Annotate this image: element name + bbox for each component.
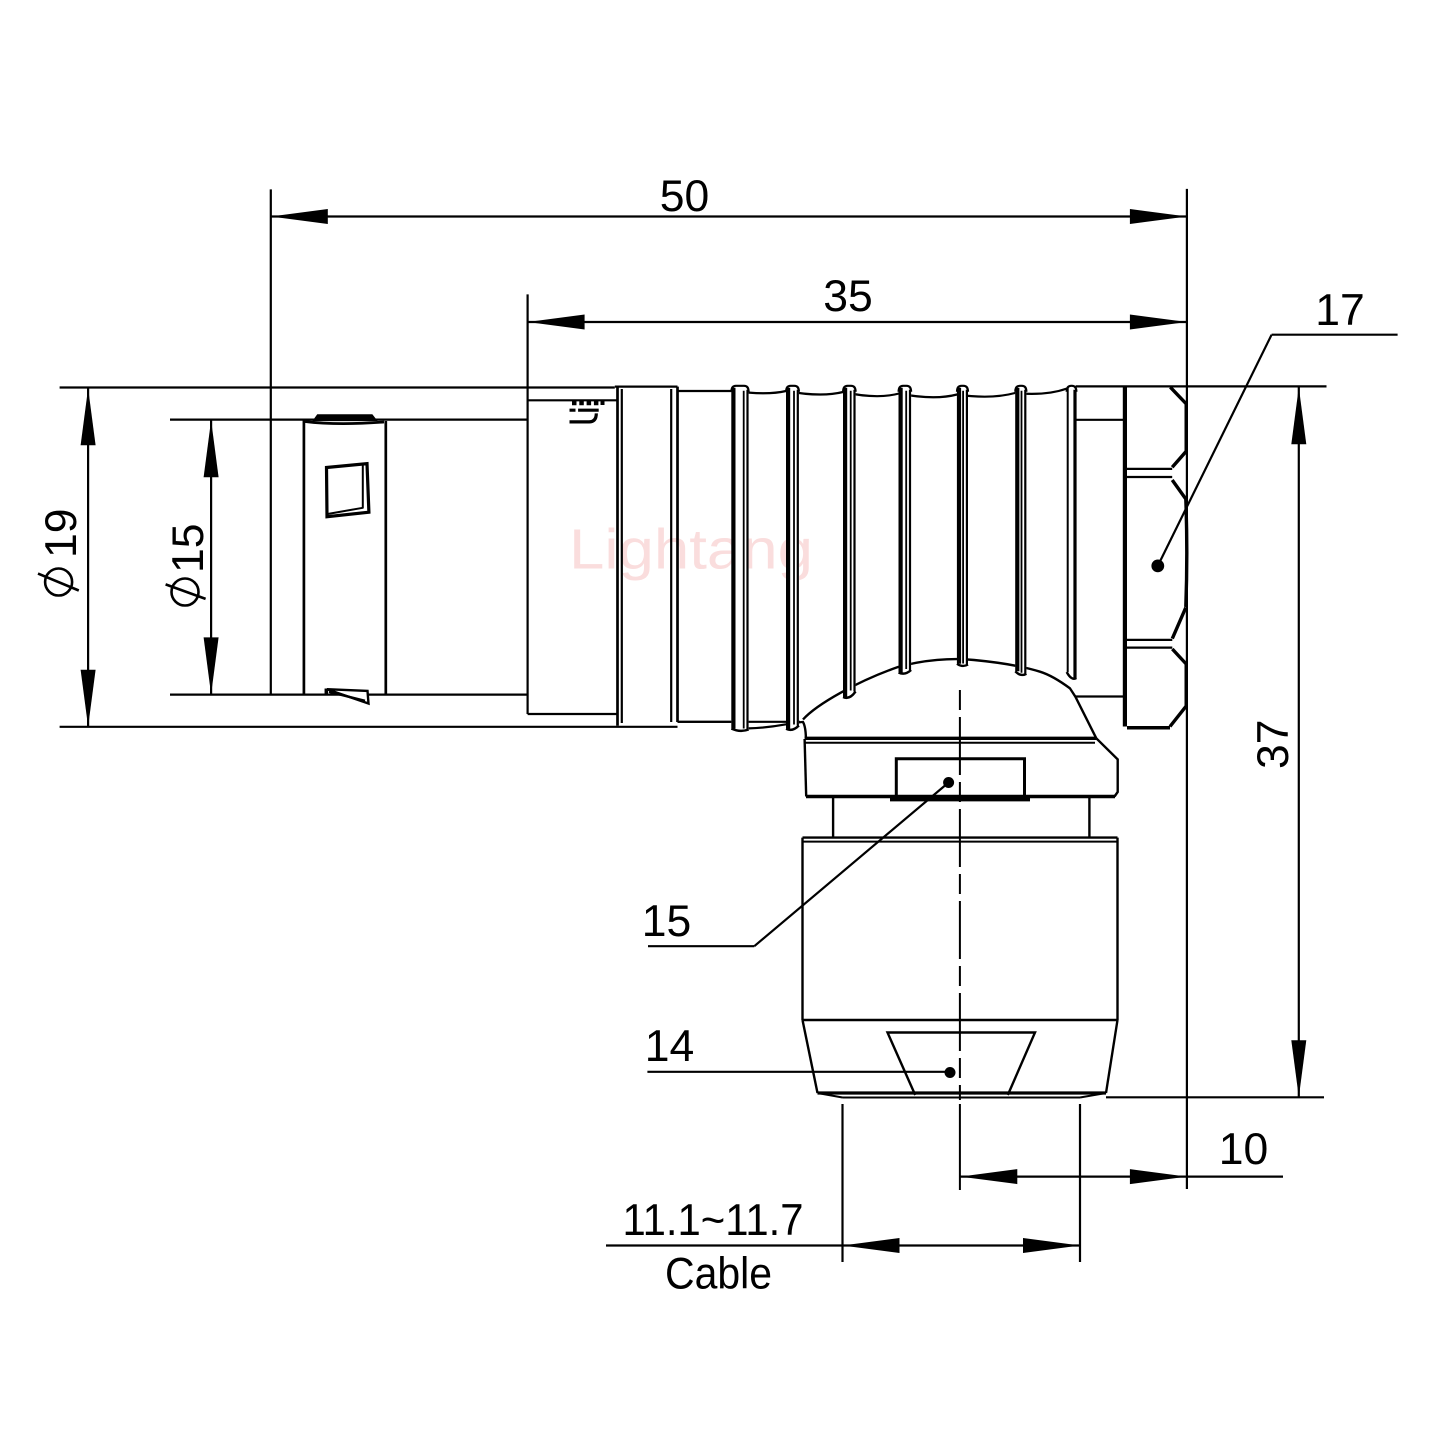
svg-text:Cable: Cable: [665, 1250, 772, 1299]
svg-text:35: 35: [823, 272, 873, 321]
svg-text:17: 17: [1315, 286, 1365, 335]
svg-text:15: 15: [642, 897, 692, 946]
svg-text:10: 10: [1219, 1125, 1269, 1174]
svg-text:11.1~11.7: 11.1~11.7: [623, 1196, 804, 1245]
svg-text:37: 37: [1249, 720, 1298, 770]
svg-text:15: 15: [164, 524, 213, 574]
svg-text:Lightang: Lightang: [569, 518, 813, 582]
svg-text:50: 50: [660, 172, 710, 221]
svg-text:19: 19: [37, 509, 86, 559]
svg-text:14: 14: [645, 1022, 695, 1071]
